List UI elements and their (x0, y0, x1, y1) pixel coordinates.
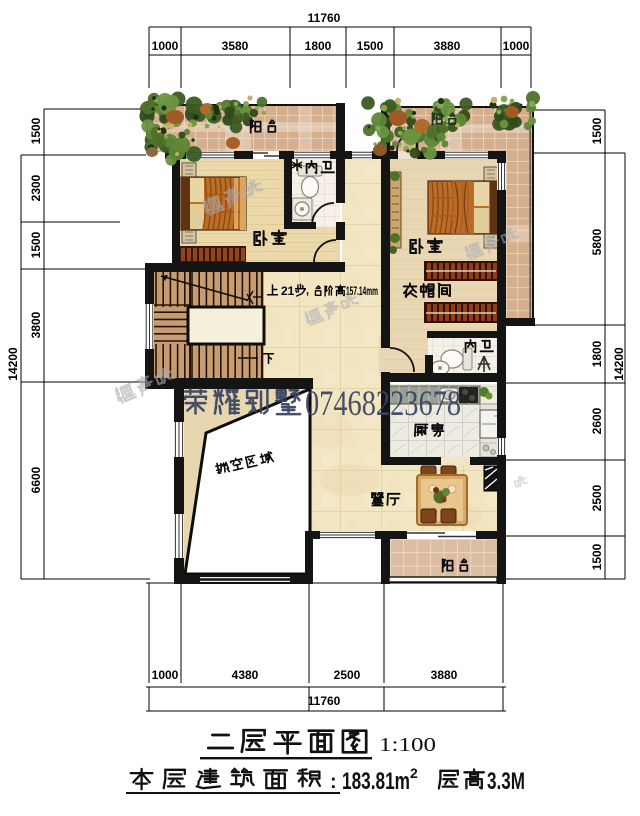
svg-text:4380: 4380 (232, 668, 259, 682)
svg-text:2500: 2500 (334, 668, 361, 682)
svg-text:2500: 2500 (590, 484, 604, 511)
svg-text:07468223678: 07468223678 (305, 383, 461, 423)
svg-text:1000: 1000 (152, 668, 179, 682)
svg-text:1500: 1500 (29, 117, 43, 144)
svg-text:14200: 14200 (612, 347, 626, 381)
svg-text:1500: 1500 (590, 543, 604, 570)
svg-text:,: , (306, 285, 309, 297)
svg-text:1:100: 1:100 (379, 734, 436, 756)
svg-text:1000: 1000 (152, 39, 179, 53)
svg-text:3580: 3580 (222, 39, 249, 53)
svg-text:11760: 11760 (308, 11, 341, 25)
svg-text::: : (330, 771, 337, 793)
svg-text:1500: 1500 (357, 39, 384, 53)
svg-text:5800: 5800 (590, 228, 604, 255)
svg-text:1500: 1500 (590, 117, 604, 144)
svg-text:3880: 3880 (431, 668, 458, 682)
svg-text:2300: 2300 (29, 174, 43, 201)
svg-text:3.3M: 3.3M (487, 768, 525, 795)
svg-text:1500: 1500 (29, 231, 43, 258)
svg-text:6600: 6600 (29, 466, 43, 493)
svg-text:14200: 14200 (6, 347, 20, 381)
svg-text:3800: 3800 (29, 311, 43, 338)
svg-text:1000: 1000 (503, 39, 530, 53)
svg-text:1800: 1800 (305, 39, 332, 53)
svg-text:3880: 3880 (434, 39, 461, 53)
svg-text:2600: 2600 (590, 407, 604, 434)
svg-text:1800: 1800 (590, 340, 604, 367)
svg-text:11760: 11760 (308, 694, 341, 708)
svg-text:183.81m: 183.81m (342, 768, 410, 795)
svg-text:2: 2 (410, 765, 418, 781)
svg-text:21: 21 (281, 284, 295, 298)
